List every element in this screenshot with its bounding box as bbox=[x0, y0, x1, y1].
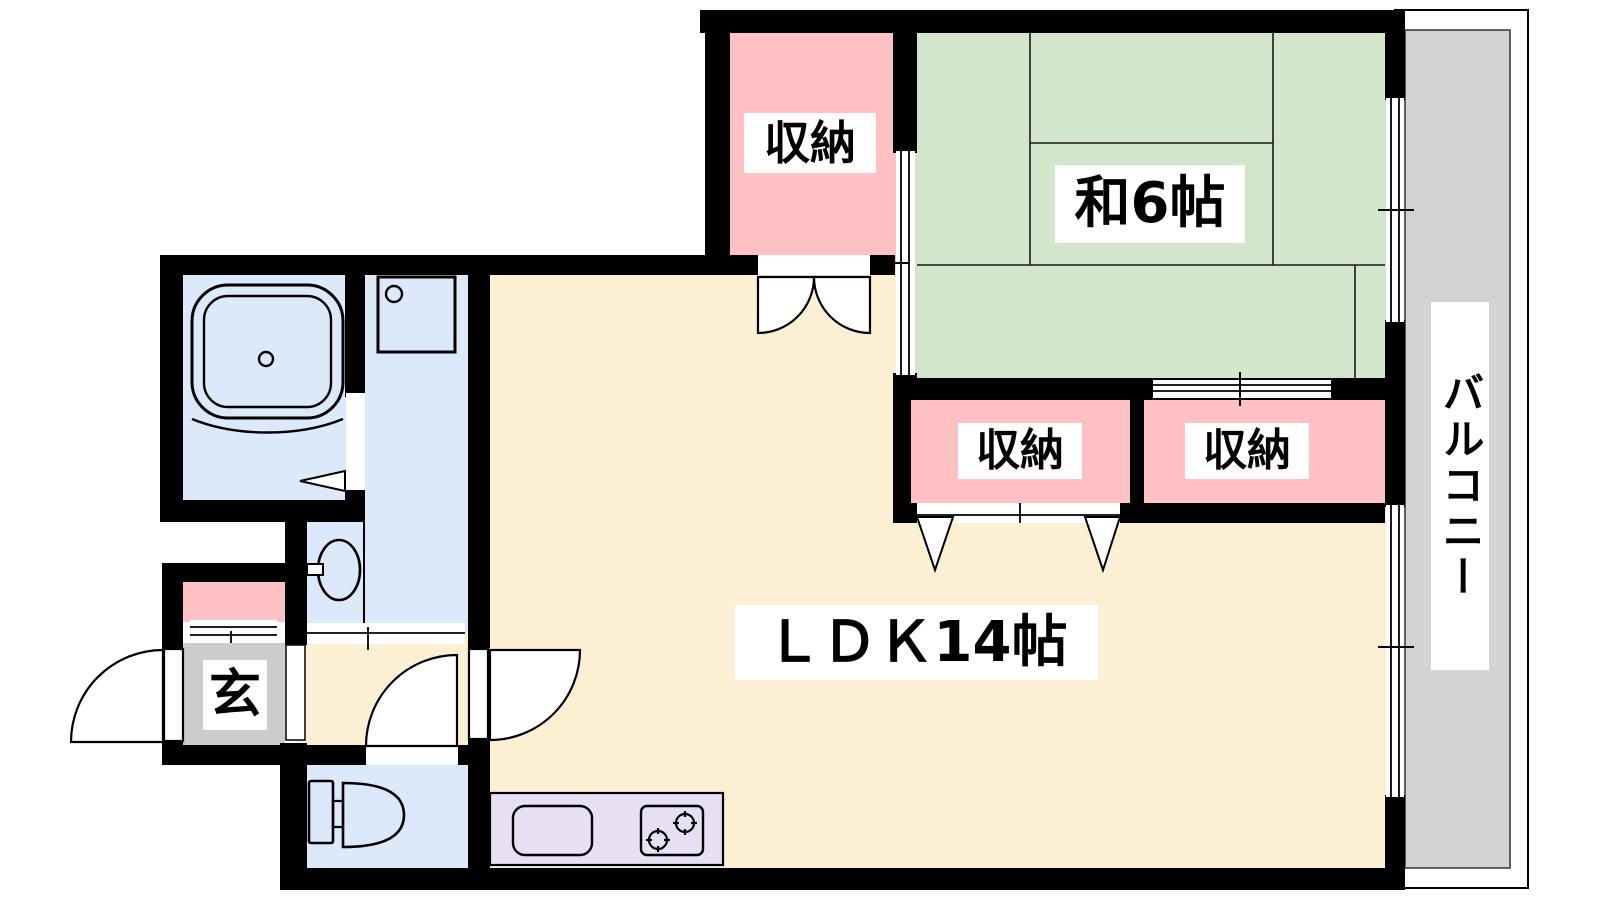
wall-segment bbox=[700, 10, 1405, 33]
door-leaf bbox=[164, 649, 183, 741]
wall-segment bbox=[1385, 320, 1405, 507]
wall-segment bbox=[160, 500, 365, 522]
toilet-room-floor bbox=[295, 755, 480, 880]
balcony-label: バルコニー bbox=[1431, 302, 1489, 670]
wall-segment bbox=[1385, 10, 1405, 100]
wall-segment bbox=[893, 10, 917, 153]
storage-top-label: 収納 bbox=[744, 113, 876, 173]
wall-segment bbox=[162, 563, 183, 652]
wall-segment bbox=[285, 500, 307, 645]
japanese-room-label: 和6帖 bbox=[1055, 165, 1245, 243]
wall-segment bbox=[160, 255, 183, 522]
washroom-floor bbox=[355, 265, 480, 645]
floor-plan: 収納 和6帖 収納 収納 ＬＤＫ14帖 玄 バルコニー bbox=[0, 0, 1600, 900]
wall-segment bbox=[345, 488, 365, 522]
shoe-cabinet-sliding-door bbox=[190, 620, 277, 643]
entrance-door bbox=[71, 649, 183, 742]
wall-segment bbox=[280, 743, 307, 890]
ldk-label: ＬＤＫ14帖 bbox=[735, 605, 1098, 680]
door-leaf bbox=[469, 649, 488, 739]
wall-segment bbox=[345, 273, 365, 397]
entrance-step bbox=[286, 645, 305, 740]
shoe-cabinet bbox=[183, 582, 285, 622]
kitchen-counter bbox=[490, 793, 723, 865]
storage-right-label: 収納 bbox=[1185, 423, 1309, 479]
wall-segment bbox=[705, 10, 730, 275]
entrance-label: 玄 bbox=[203, 660, 267, 730]
storage-left-label: 収納 bbox=[958, 423, 1082, 479]
door-swing-arc bbox=[71, 650, 163, 742]
wall-segment bbox=[280, 868, 1405, 890]
wall-segment bbox=[468, 255, 490, 649]
wall-segment bbox=[1130, 398, 1144, 505]
